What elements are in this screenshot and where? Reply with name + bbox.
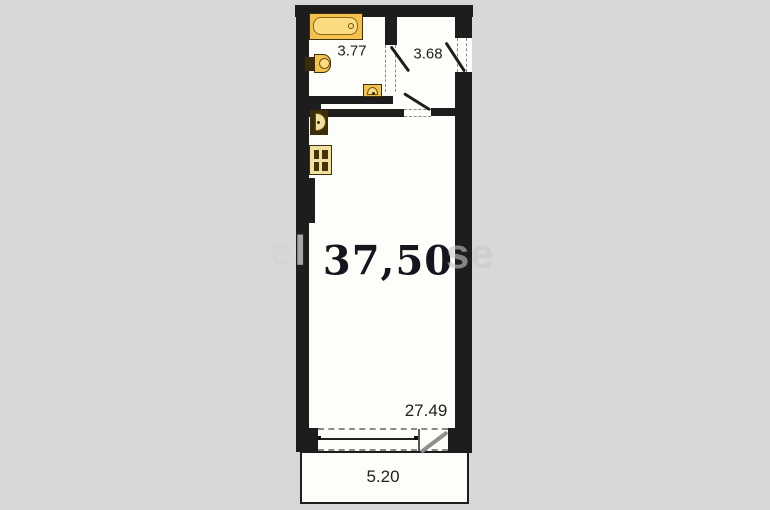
hallway-area-label: 3.68 <box>413 46 442 63</box>
balcony-area-label: 5.20 <box>366 467 399 487</box>
watermark-fragment-left: el <box>270 230 307 272</box>
bathtub-drain <box>348 23 354 29</box>
hallway-door-opening <box>404 109 431 117</box>
stove-burner <box>322 150 328 159</box>
stove-burner <box>314 150 320 159</box>
bathtub-icon <box>309 13 363 40</box>
stove-burner <box>322 162 328 171</box>
wall-bottom-left-block <box>300 428 318 453</box>
wall-right-above-entrance <box>455 5 472 38</box>
main-room-area-label: 37,50 <box>323 238 453 285</box>
wall-left-duct-bump <box>309 178 315 223</box>
kitchen-sink-drain <box>317 121 320 124</box>
kitchen-sink-icon <box>310 110 328 135</box>
wall-bathroom-hallway-divider <box>385 17 397 45</box>
window-door-divider <box>418 429 420 451</box>
toilet-tank <box>305 57 314 71</box>
floor-plan-canvas: 3.77 3.68 37,50 27.49 5.20 el se <box>0 0 770 510</box>
window-dimension-label: 27.49 <box>405 401 448 421</box>
watermark-fragment-right: se <box>446 233 495 275</box>
wall-bathroom-bottom-upper <box>309 96 393 104</box>
wall-bottom-right-block <box>448 428 472 453</box>
toilet-icon <box>314 54 331 73</box>
window-dimension-end-right <box>414 436 418 440</box>
toilet-seat <box>319 58 330 69</box>
window-dashed-bottom <box>318 449 448 451</box>
window-dimension-end-left <box>317 436 321 440</box>
stove-burner <box>314 162 320 171</box>
window-dimension-line <box>319 438 417 440</box>
window-dashed-top <box>318 428 448 430</box>
stove-icon <box>309 145 332 175</box>
bathroom-sink-drain <box>372 92 375 95</box>
wall-hallway-bottom-right <box>431 108 455 116</box>
bathroom-sink-icon <box>363 84 382 97</box>
bathroom-area-label: 3.77 <box>337 43 366 60</box>
